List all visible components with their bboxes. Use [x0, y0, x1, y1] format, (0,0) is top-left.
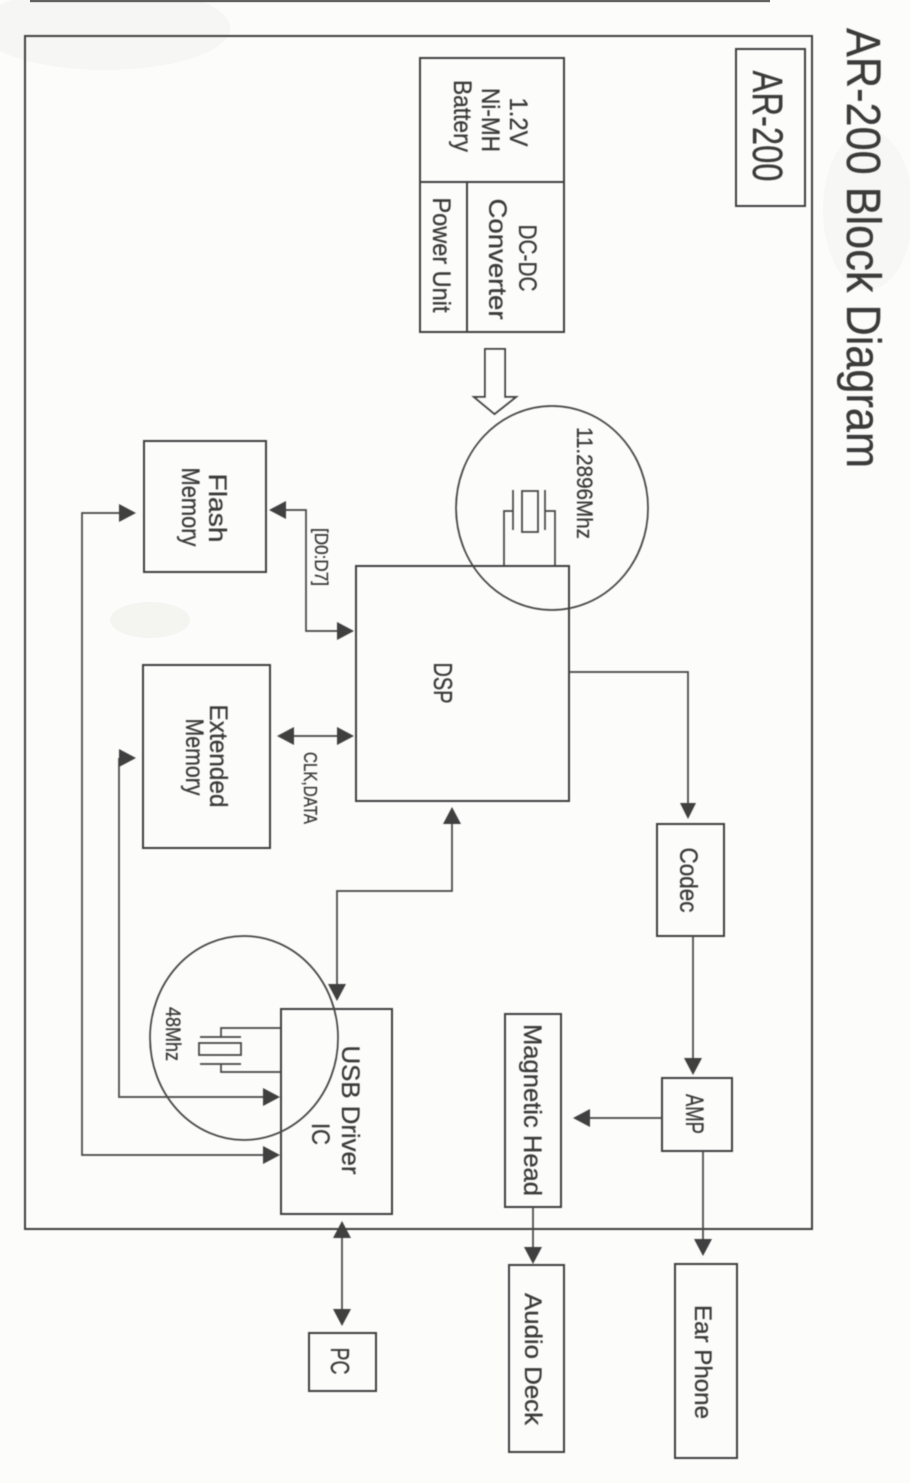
svg-text:Flash: Flash: [203, 474, 231, 543]
svg-text:Memory: Memory: [176, 468, 204, 547]
svg-text:48Mhz: 48Mhz: [161, 1007, 184, 1061]
svg-text:IC: IC: [306, 1123, 334, 1145]
svg-text:Audio Deck: Audio Deck: [519, 1293, 546, 1426]
svg-text:PC: PC: [325, 1348, 355, 1375]
svg-text:AR-200: AR-200: [743, 71, 791, 182]
svg-text:DC-DC: DC-DC: [513, 225, 541, 292]
svg-text:Ni-MH: Ni-MH: [476, 88, 504, 152]
svg-text:Converter: Converter: [483, 199, 511, 320]
svg-text:11.2896Mhz: 11.2896Mhz: [572, 427, 597, 539]
svg-text:Codec: Codec: [674, 848, 702, 913]
svg-text:Memory: Memory: [180, 719, 208, 796]
svg-text:Magnetic Head: Magnetic Head: [518, 1024, 546, 1196]
svg-text:USB Driver: USB Driver: [336, 1046, 364, 1175]
svg-text:Ear Phone: Ear Phone: [689, 1305, 716, 1419]
svg-text:CLK,DATA: CLK,DATA: [300, 752, 320, 824]
svg-text:DSP: DSP: [428, 663, 458, 704]
svg-text:AMP: AMP: [680, 1094, 708, 1134]
svg-text:Battery: Battery: [448, 80, 476, 152]
svg-text:1.2V: 1.2V: [504, 98, 532, 147]
svg-text:[D0:D7]: [D0:D7]: [311, 528, 331, 586]
svg-text:AR-200 Block Diagram: AR-200 Block Diagram: [836, 28, 889, 468]
svg-text:Power Unit: Power Unit: [427, 198, 455, 313]
